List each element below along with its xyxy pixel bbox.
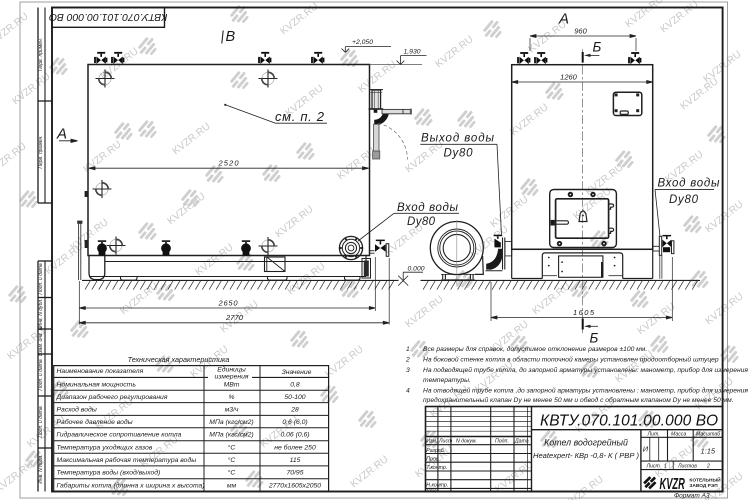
svg-text:2: 2 <box>706 463 710 469</box>
svg-text:Дата: Дата <box>514 438 529 444</box>
svg-text:ЗАВОД РЭП: ЗАВОД РЭП <box>689 483 718 489</box>
svg-text:1: 1 <box>664 463 667 469</box>
svg-text:КВТУ.070.101.00.000 ВО: КВТУ.070.101.00.000 ВО <box>49 11 168 23</box>
svg-text:Наименование показателя: Наименование показателя <box>57 368 144 375</box>
svg-text:А: А <box>558 11 569 28</box>
svg-text:Масштаб: Масштаб <box>696 431 721 437</box>
svg-text:2520: 2520 <box>218 158 240 167</box>
svg-text:Техническая характеристика: Техническая характеристика <box>128 355 230 364</box>
svg-text:Инв. N дубл.: Инв. N дубл. <box>38 299 44 328</box>
svg-text:1:15: 1:15 <box>700 447 715 456</box>
svg-text:Dy80: Dy80 <box>407 216 436 228</box>
svg-text:Лист: Лист <box>438 438 453 444</box>
svg-text:Формат А3: Формат А3 <box>674 493 710 500</box>
svg-text:Heatexpert- КВр -0,8- К ( РВР: Heatexpert- КВр -0,8- К ( РВР ) <box>533 451 639 460</box>
svg-text:Выход воды: Выход воды <box>421 132 495 144</box>
svg-text:А: А <box>56 126 67 143</box>
svg-text:2770: 2770 <box>225 313 244 322</box>
svg-text:960: 960 <box>574 27 587 36</box>
svg-text:На подводящей трубе котла, д: На подводящей трубе котла, до запорной а… <box>423 366 748 374</box>
svg-text:KVZR: KVZR <box>660 474 686 492</box>
svg-text:0,8: 0,8 <box>290 381 300 388</box>
svg-text:Лист: Лист <box>646 463 661 469</box>
svg-text:1260: 1260 <box>560 73 578 82</box>
svg-text:4: 4 <box>406 387 410 394</box>
svg-text:Гидравлическое сопротивление к: Гидравлическое сопротивление котла <box>57 431 182 439</box>
svg-text:Вход воды: Вход воды <box>658 178 721 190</box>
svg-text:28: 28 <box>290 407 299 414</box>
svg-text:Температура воды (вход/выход): Температура воды (вход/выход) <box>57 469 161 477</box>
svg-text:Dy80: Dy80 <box>669 194 699 206</box>
svg-text:2: 2 <box>405 357 410 364</box>
svg-text:0,06 (0,6): 0,06 (0,6) <box>280 432 309 439</box>
svg-text:И: И <box>643 445 649 454</box>
svg-text:МПа (кгс/см2): МПа (кгс/см2) <box>209 432 253 439</box>
svg-text:Масса: Масса <box>671 431 686 437</box>
svg-text:1605: 1605 <box>573 308 595 317</box>
svg-text:2770х1605х2050: 2770х1605х2050 <box>268 482 321 489</box>
svg-text:Листов: Листов <box>677 463 697 469</box>
svg-text:Dy80: Dy80 <box>444 148 474 160</box>
svg-text:Единицы: Единицы <box>217 365 245 373</box>
svg-text:Подп. и дата: Подп. и дата <box>38 263 44 295</box>
svg-text:Взам. инв. N: Взам. инв. N <box>38 327 44 357</box>
svg-text:+2,050: +2,050 <box>352 39 373 46</box>
svg-text:N докум.: N докум. <box>456 438 477 444</box>
svg-text:°С: °С <box>228 469 236 477</box>
svg-text:3: 3 <box>406 367 410 374</box>
svg-text:Все размеры для справок, допус: Все размеры для справок, допустимое откл… <box>423 345 647 353</box>
svg-text:мм: мм <box>227 482 237 489</box>
svg-text:температуры.: температуры. <box>423 377 471 384</box>
svg-text:Температура уходящих газов: Температура уходящих газов <box>57 444 153 452</box>
svg-text:0,6 (6,0): 0,6 (6,0) <box>282 419 307 426</box>
svg-text:Пров.: Пров. <box>426 457 440 463</box>
svg-text:Т.контр.: Т.контр. <box>426 465 447 471</box>
svg-text:м3/ч: м3/ч <box>225 407 239 414</box>
svg-text:Габариты котла (длинна х ширин: Габариты котла (длинна х ширина х высота… <box>57 481 205 489</box>
svg-text:Подп. и дата: Подп. и дата <box>38 406 44 438</box>
svg-text:предохранительный клапан Dу н: предохранительный клапан Dу не менее 50 … <box>423 396 734 404</box>
svg-text:Подп.: Подп. <box>495 438 509 444</box>
svg-text:70/95: 70/95 <box>286 470 303 477</box>
svg-text:Расход воды: Расход воды <box>57 406 97 414</box>
svg-text:0.000: 0.000 <box>408 266 425 273</box>
svg-text:Изм.: Изм. <box>426 438 437 444</box>
svg-text:Максимальная рабочая температу: Максимальная рабочая температура воды <box>57 456 197 464</box>
svg-text:Б: Б <box>593 40 602 55</box>
svg-text:Перв. примен.: Перв. примен. <box>38 38 44 71</box>
svg-text:2650: 2650 <box>218 299 239 308</box>
svg-text:Рабочее давление воды: Рабочее давление воды <box>57 418 133 426</box>
svg-text:Разраб.: Разраб. <box>426 448 445 454</box>
svg-text:КВТУ.070.101.00.000 ВО: КВТУ.070.101.00.000 ВО <box>540 413 718 430</box>
svg-text:Подп. и дата: Подп. и дата <box>38 359 44 391</box>
svg-text:1: 1 <box>406 346 410 353</box>
svg-text:см. п. 2: см. п. 2 <box>275 109 325 124</box>
svg-text:115: 115 <box>290 457 301 464</box>
svg-text:Номинальная мощность: Номинальная мощность <box>57 381 137 388</box>
svg-text:Котел водогрейный: Котел водогрейный <box>544 438 628 448</box>
svg-text:Утв.: Утв. <box>426 489 438 495</box>
svg-text:Инв. N подл.: Инв. N подл. <box>38 454 44 483</box>
svg-text:°С: °С <box>228 456 236 464</box>
svg-text:Значение: Значение <box>282 369 312 376</box>
svg-text:Б: Б <box>590 331 599 346</box>
svg-text:1,930: 1,930 <box>404 48 421 55</box>
svg-text:°С: °С <box>228 444 236 452</box>
svg-text:В: В <box>226 29 236 45</box>
svg-text:МПа (кгс/см2): МПа (кгс/см2) <box>209 419 253 426</box>
svg-text:МВт: МВт <box>224 381 240 388</box>
svg-text:Диапазон рабочего регулировани: Диапазон рабочего регулирования <box>56 393 168 401</box>
svg-text:%: % <box>228 394 234 401</box>
svg-text:Перв. примен.: Перв. примен. <box>38 135 44 168</box>
svg-text:50-100: 50-100 <box>284 394 305 401</box>
svg-text:На боковой стенке котла в обла: На боковой стенке котла в области топочн… <box>423 356 719 364</box>
svg-text:Вход воды: Вход воды <box>397 202 459 214</box>
svg-text:измерения: измерения <box>214 374 248 381</box>
svg-text:не более 250: не более 250 <box>274 444 316 452</box>
svg-text:Лит.: Лит. <box>647 431 660 437</box>
svg-text:На отводящей трубе котла ,до з: На отводящей трубе котла ,до запорной ар… <box>423 386 750 394</box>
